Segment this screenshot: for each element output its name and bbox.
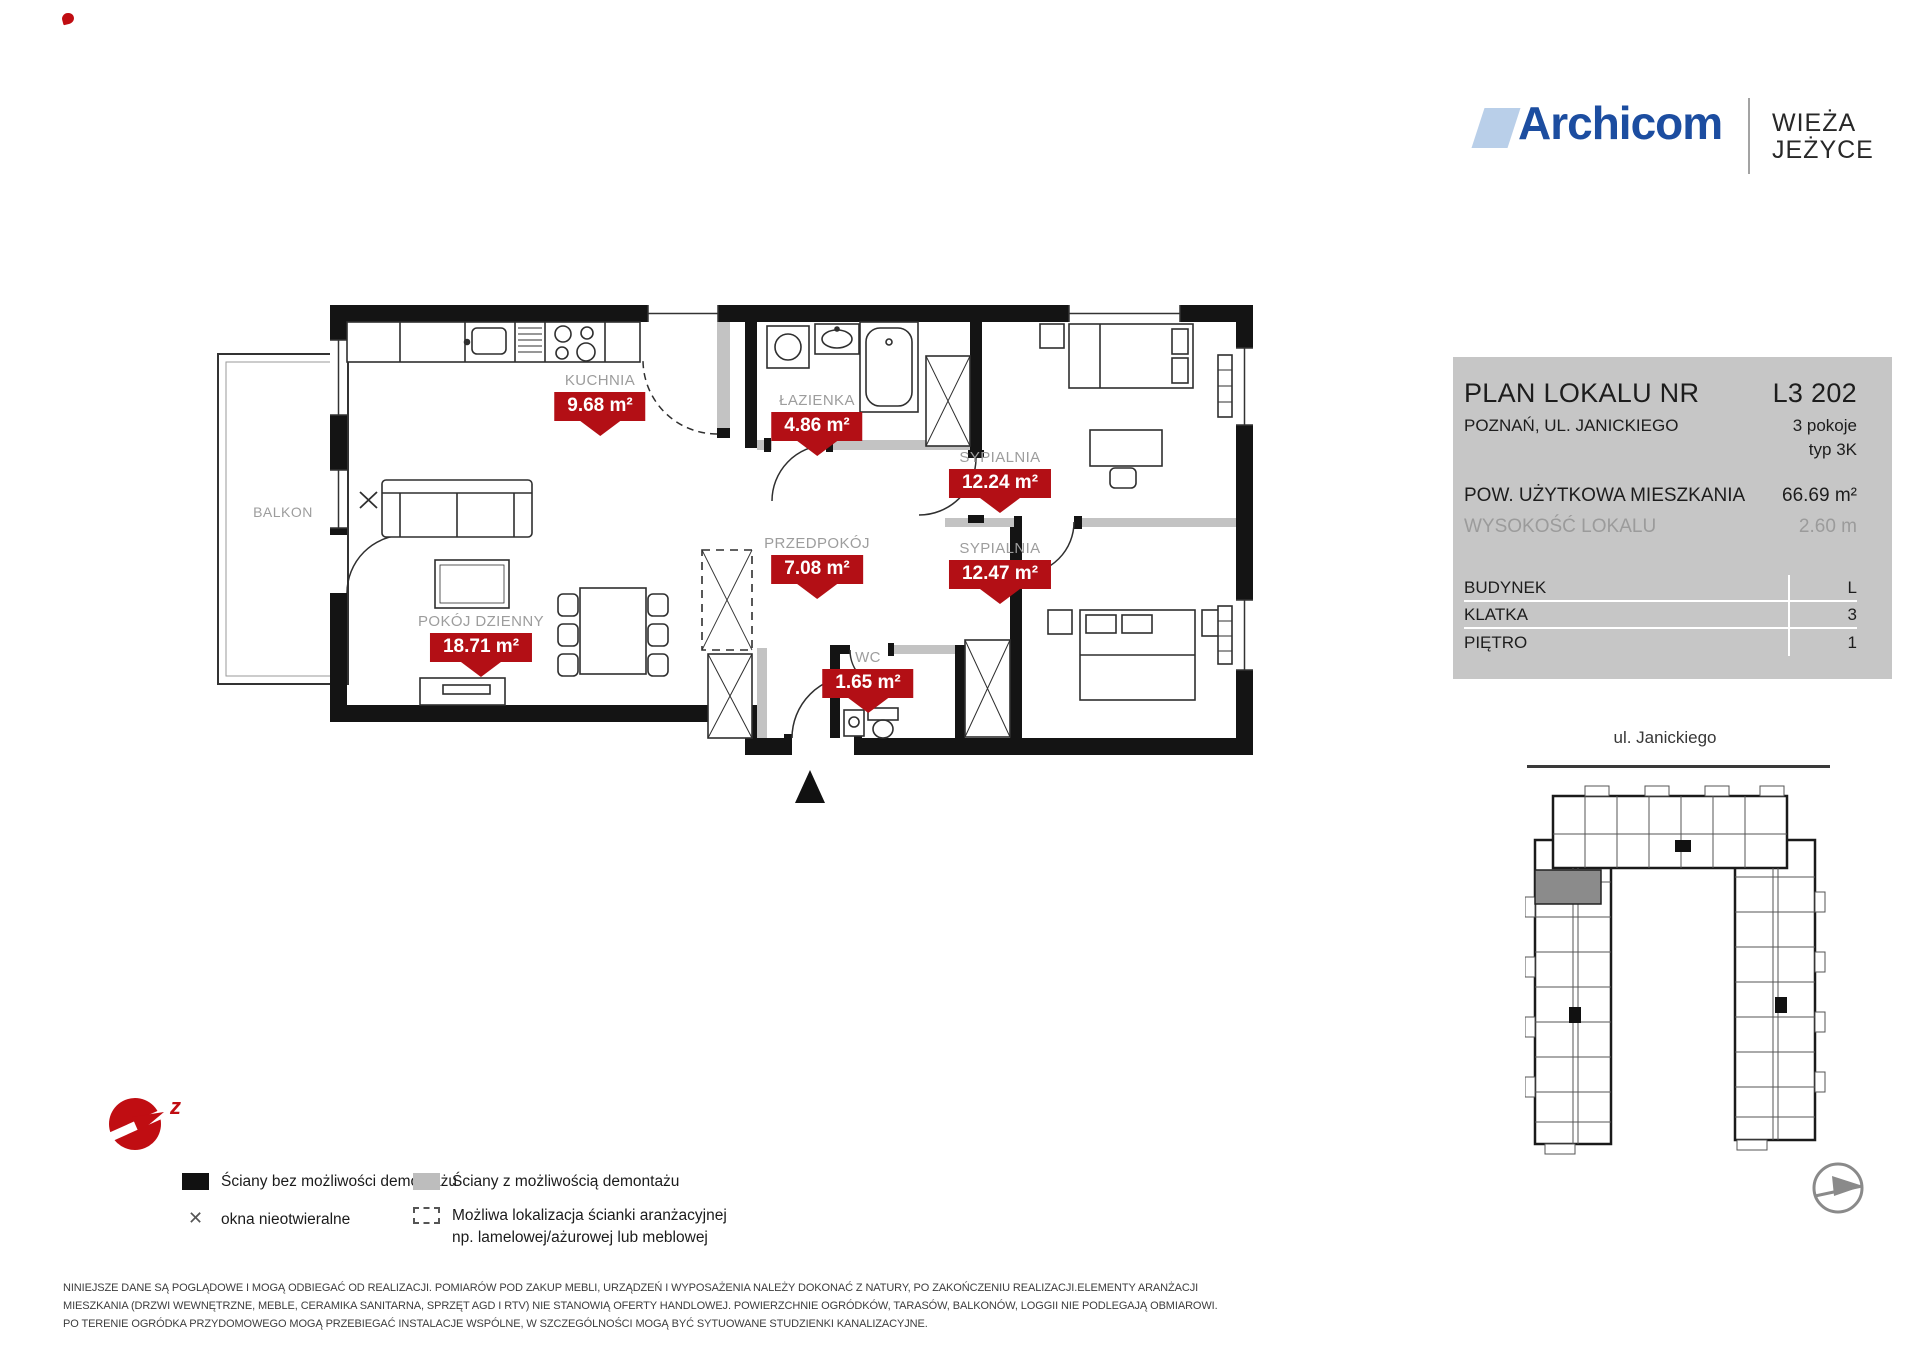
coffee-table [435,560,509,608]
street-line [1527,765,1830,768]
height-value: 2.60 m [1799,516,1857,538]
rooms-count: 3 pokoje [1793,416,1857,436]
project-name: WIEŻA JEŻYCE [1772,110,1874,164]
area-badge: 1.65 m² [822,669,913,698]
washing-machine [767,326,809,368]
site-plan-svg [1525,782,1835,1167]
legend-item-partition: Możliwa lokalizacja ścianki aranżacyjnej… [413,1205,727,1250]
area-badge: 7.08 m² [771,555,862,584]
dashed-box-icon [413,1207,440,1224]
sofa [382,480,532,537]
table-divider [1788,575,1790,656]
possible-partition-box [702,550,752,650]
radiator-1 [1218,355,1232,417]
nightstand-1 [1040,324,1064,348]
room-badge-wc: WC 1.65 m² [822,649,913,698]
area-badge: 12.47 m² [949,560,1051,589]
dining-table [558,588,668,676]
legend-item-fixed-windows: ✕ okna nieotwieralne [182,1209,350,1231]
table-value: 1 [1848,633,1857,653]
page: Archicom WIEŻA JEŻYCE [0,0,1920,1358]
legend-item-demountable-walls: Ściany z możliwością demontażu [413,1171,679,1193]
corner-mark [61,12,75,26]
room-badge-pokoj-dzienny: POKÓJ DZIENNY 18.71 m² [418,613,544,662]
radiator-2 [1218,606,1232,664]
balcony-label: BALKON [233,504,333,520]
archicom-logo-icon [1472,108,1521,148]
disclaimer-text: NINIEJSZE DANE SĄ POGLĄDOWE I MOGĄ ODBIE… [63,1279,1223,1333]
building-table: BUDYNEK L KLATKA 3 PIĘTRO 1 [1464,575,1857,656]
bathtub [860,322,918,412]
project-name-line2: JEŻYCE [1772,137,1874,164]
legend-label: okna nieotwieralne [221,1209,350,1231]
room-badge-przedpokoj: PRZEDPOKÓJ 7.08 m² [764,535,870,584]
floor-plan-svg [160,230,1270,810]
bed-1 [1069,324,1193,388]
room-name: KUCHNIA [554,372,645,389]
bed-2 [1080,610,1195,700]
table-label: PIĘTRO [1464,633,1527,653]
info-panel: PLAN LOKALU NR L3 202 POZNAŃ, UL. JANICK… [1453,357,1892,679]
room-name: SYPIALNIA [949,540,1051,557]
bedroom1-furniture [1040,324,1232,488]
height-label: WYSOKOŚĆ LOKALU [1464,516,1656,538]
living-room-furniture [382,480,668,705]
street-label: ul. Janickiego [1545,728,1785,748]
room-badge-sypialnia-2: SYPIALNIA 12.47 m² [949,540,1051,589]
room-badge-kuchnia: KUCHNIA 9.68 m² [554,372,645,421]
wardrobe-hall [926,356,970,446]
room-name: POKÓJ DZIENNY [418,613,544,630]
fixed-window-x-icon [360,492,377,508]
table-label: BUDYNEK [1464,578,1546,598]
desk [1090,430,1162,488]
area-badge: 12.24 m² [949,469,1051,498]
entrance-arrow [795,770,825,803]
wc-basin [844,710,864,736]
area-badge: 18.71 m² [430,633,532,662]
x-mark-icon: ✕ [182,1209,209,1228]
table-row-budynek: BUDYNEK L [1464,575,1857,602]
archicom-logo-text: Archicom [1518,96,1722,150]
room-badge-lazienka: ŁAZIENKA 4.86 m² [771,392,862,441]
legend-label-line2: np. lamelowej/ażurowej lub meblowej [452,1227,727,1249]
kitchen-counter [347,322,640,362]
room-name: ŁAZIENKA [771,392,862,409]
table-value: 3 [1848,605,1857,625]
room-name: WC [822,649,913,666]
area-badge: 9.68 m² [554,392,645,421]
demountable-wall-swatch [413,1173,440,1190]
project-name-line1: WIEŻA [1772,110,1874,137]
bedroom2-furniture [1048,606,1232,700]
table-value: L [1848,578,1857,598]
table-row-klatka: KLATKA 3 [1464,602,1857,629]
unit-type: typ 3K [1464,440,1857,460]
kitchen-sink [472,328,506,354]
highlighted-unit [1535,870,1601,904]
area-label: POW. UŻYTKOWA MIESZKANIA [1464,485,1745,507]
table-label: KLATKA [1464,605,1528,625]
unit-number: L3 202 [1773,378,1857,409]
legend-label: Ściany z możliwością demontażu [452,1171,679,1193]
plan-title-label: PLAN LOKALU NR [1464,378,1699,409]
north-compass-icon [1806,1158,1870,1222]
area-badge: 4.86 m² [771,412,862,441]
room-name: SYPIALNIA [949,449,1051,466]
solid-wall-swatch [182,1173,209,1190]
table-row-pietro: PIĘTRO 1 [1464,629,1857,656]
area-value: 66.69 m² [1782,485,1857,507]
nightstand-3 [1048,610,1072,634]
compass-direction-letter: z [169,1094,181,1119]
brand-divider [1748,98,1750,174]
washbasin [815,324,859,354]
legend-label-line1: Możliwa lokalizacja ścianki aranżacyjnej [452,1205,727,1227]
room-name: PRZEDPOKÓJ [764,535,870,552]
wardrobe-bedroom2 [965,640,1010,737]
wardrobe-corridor [708,654,752,738]
address: POZNAŃ, UL. JANICKIEGO [1464,416,1678,436]
room-badge-sypialnia-1: SYPIALNIA 12.24 m² [949,449,1051,498]
red-compass-icon: z [98,1088,198,1164]
tv-cabinet [420,678,505,705]
legend-label: Możliwa lokalizacja ścianki aranżacyjnej… [452,1205,727,1250]
